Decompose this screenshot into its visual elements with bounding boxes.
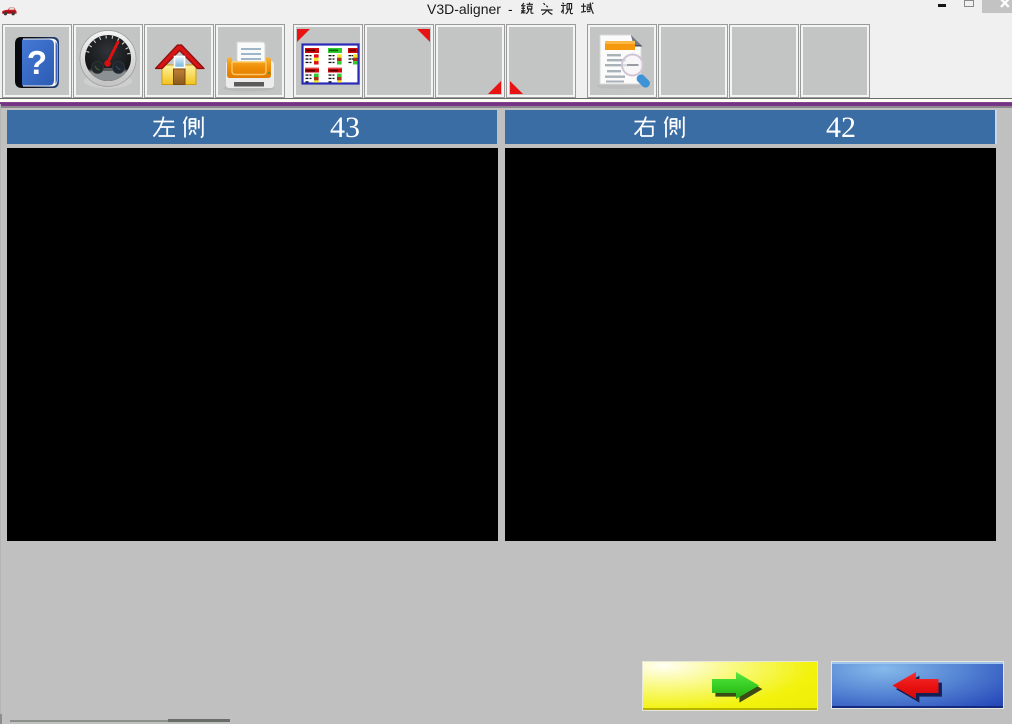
svg-text:?: ? [27, 44, 47, 81]
